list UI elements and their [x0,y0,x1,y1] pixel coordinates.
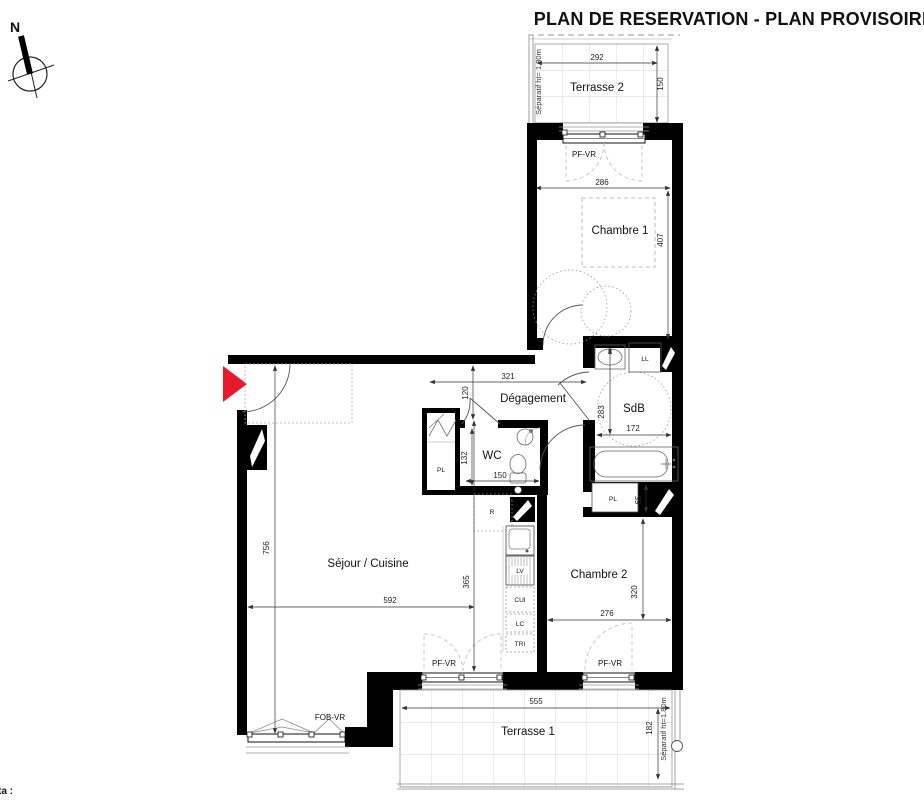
separatif-label-terrasse2: Séparatif ht= 1.80m [534,49,543,115]
footer-note-partial: ta : [0,786,13,797]
closet-chambre2-pl: PL [592,483,638,512]
room-label-sdb: SdB [623,403,645,415]
room-label-chambre1: Chambre 1 [592,225,649,237]
dim-degagement-width: 321 [501,372,515,381]
fixture-label-cui: CUI [514,597,525,604]
dim-terrasse1-depth: 182 [645,721,654,735]
dim-sdb-width: 172 [626,424,640,433]
window-pfvr-chambre1: PF-VR [559,127,649,181]
dim-sdb-length: 283 [597,405,606,419]
opening-label-fobvr: FOB-VR [315,713,345,722]
wc-fixtures [510,428,540,494]
room-label-degagement: Dégagement [500,393,567,405]
dim-chambre1-width: 286 [595,178,609,187]
dim-sejour-length: 756 [262,541,271,555]
north-label: N [10,19,20,35]
fixture-label-lv: LV [516,568,524,575]
opening-label-pfvr-top: PF-VR [572,150,596,159]
room-label-terrasse1: Terrasse 1 [501,726,555,738]
window-fobvr-sejour: FOB-VR [246,713,349,753]
room-label-wc: WC [482,450,501,462]
separatif-label-terrasse1: Séparatif ht=1.80m [659,697,668,761]
dim-sejour-right-length: 365 [462,575,471,589]
dim-chambre2-width: 276 [600,609,614,618]
dim-wc-width: 150 [493,471,507,480]
fixture-label-tri: TRI [515,641,526,648]
fixture-label-pl-entry: PL [437,467,445,474]
fixture-label-pl-chambre2: PL [609,496,617,503]
dim-terrasse1-width: 555 [529,697,543,706]
plan-title: PLAN DE RESERVATION - PLAN PROVISOIRE [534,9,924,29]
dim-terrasse2-depth: 150 [656,77,665,91]
entrance-arrow-icon [223,366,247,402]
north-arrow-icon [8,36,54,98]
room-label-sejour: Séjour / Cuisine [327,558,408,570]
opening-label-pfvr-chambre2: PF-VR [598,659,622,668]
window-pfvr-sejour: PF-VR [418,634,507,689]
fixture-label-ll: LL [641,356,649,363]
entrance-door-swing [242,364,290,412]
room-label-chambre2: Chambre 2 [571,569,628,581]
walls-chambre1-sdb [527,140,672,517]
dim-chambre2-length: 320 [630,585,639,599]
dimension-labels: 292 150 286 407 321 120 283 172 132 150 … [262,53,665,735]
dim-terrasse2-width: 292 [590,53,604,62]
fixture-label-r: R [490,509,495,516]
dim-chambre1-length: 407 [656,233,665,247]
window-pfvr-chambre2: PF-VR [579,623,639,689]
fixture-label-lc: LC [516,621,525,628]
entry-zone-dashed [245,364,352,423]
room-label-terrasse2: Terrasse 2 [570,82,624,94]
dim-sejour-width: 592 [383,596,397,605]
opening-label-pfvr-sejour: PF-VR [432,659,456,668]
dim-degagement-depth: 120 [461,386,470,400]
floor-plan-drawing: PLAN DE RESERVATION - PLAN PROVISOIRE N … [0,0,924,800]
dim-wc-length: 132 [460,451,469,465]
closet-entry-pl: PL [422,408,460,495]
dim-pl-depth: 65 [634,495,643,504]
floor-plan-page: PLAN DE RESERVATION - PLAN PROVISOIRE N … [0,0,924,800]
